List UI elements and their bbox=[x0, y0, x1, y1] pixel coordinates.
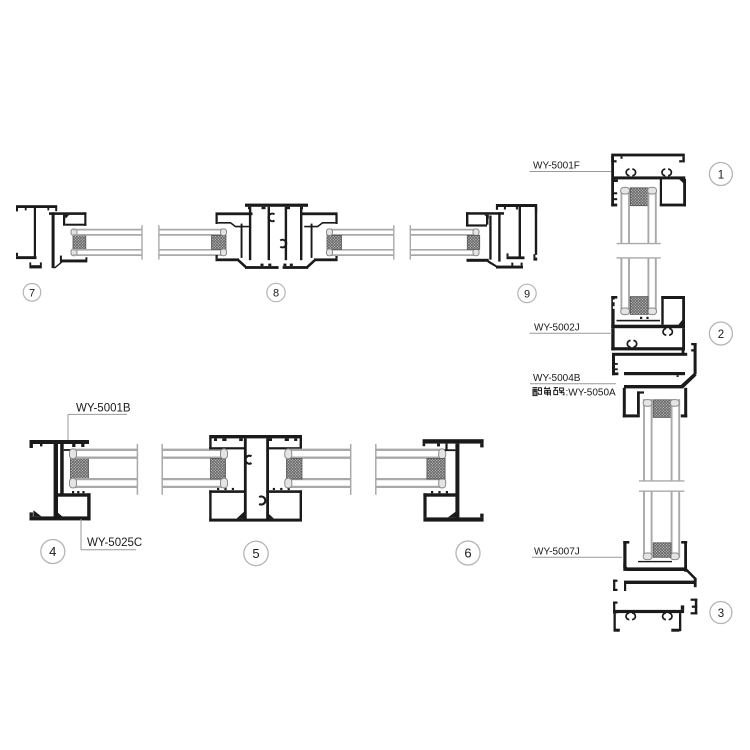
svg-text:2: 2 bbox=[718, 329, 724, 341]
svg-text:5: 5 bbox=[252, 546, 259, 561]
svg-text:8: 8 bbox=[273, 288, 279, 300]
svg-text:WY-5004B: WY-5004B bbox=[533, 373, 581, 384]
svg-text:1: 1 bbox=[718, 169, 724, 181]
svg-text:9: 9 bbox=[524, 289, 530, 301]
svg-text:WY-5001F: WY-5001F bbox=[533, 161, 580, 172]
svg-text::WY-5050A: :WY-5050A bbox=[566, 387, 617, 398]
svg-text:WY-5025C: WY-5025C bbox=[87, 537, 142, 549]
svg-text:7: 7 bbox=[29, 287, 35, 299]
svg-text:WY-5007J: WY-5007J bbox=[534, 547, 580, 558]
svg-text:6: 6 bbox=[464, 546, 471, 561]
svg-text:4: 4 bbox=[49, 544, 56, 559]
svg-text:3: 3 bbox=[718, 608, 724, 620]
svg-text:WY-5001B: WY-5001B bbox=[76, 403, 131, 415]
svg-text:WY-5002J: WY-5002J bbox=[534, 323, 580, 334]
